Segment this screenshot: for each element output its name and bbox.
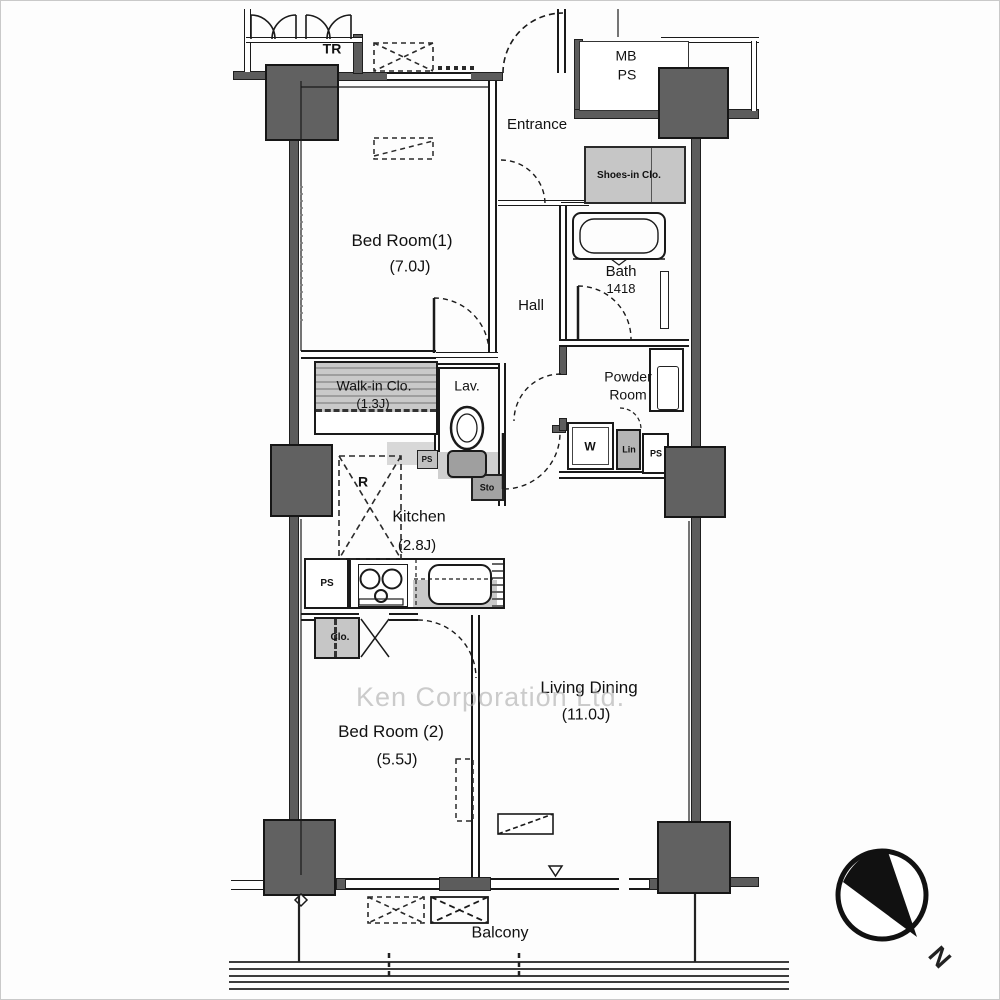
refrigerator-space: [339, 456, 401, 559]
watermark: Ken Corporation Ltd.: [356, 682, 625, 713]
ps-kitchen-label: PS: [320, 579, 333, 590]
ps-powder-label: PS: [650, 449, 662, 458]
compass-north-label: N: [923, 940, 958, 974]
diamond-marker: [295, 894, 307, 906]
entrance-label: Entrance: [507, 117, 567, 133]
bedroom2-name: Bed Room (2): [338, 723, 444, 741]
plan-symbols-layer: N: [1, 1, 1000, 1000]
washer-label: W: [584, 441, 595, 454]
linen-door-arc: [620, 408, 641, 429]
closet-label: Clo.: [331, 633, 350, 644]
compass: N: [838, 849, 957, 974]
kitchen-name: Kitchen: [392, 510, 445, 527]
bedroom2-size: (5.5J): [377, 753, 418, 770]
balcony-ac-solid: [431, 897, 488, 923]
refrigerator-label: R: [358, 475, 368, 490]
bathtub: [573, 213, 665, 265]
kitchen-sink: [414, 559, 493, 607]
bedroom1-dashed-rect: [374, 138, 433, 159]
hall-door-arc: [501, 160, 545, 204]
shoes-closet-label: Shoes-in Clo.: [597, 171, 661, 182]
powder-door-arc: [514, 374, 561, 421]
walk-in-closet-name: Walk-in Clo.: [337, 379, 412, 394]
living-door-arc: [418, 620, 476, 678]
living-counter: [498, 814, 553, 834]
trunk-room-doors: [251, 15, 351, 39]
inner-face-lines: [301, 9, 689, 875]
stove-burners: [359, 570, 403, 606]
bedroom1-name: Bed Room(1): [351, 232, 452, 250]
kitchen-size: (2.8J): [398, 538, 436, 554]
balcony-label: Balcony: [472, 926, 529, 943]
corridor-door: [503, 433, 560, 489]
ps-lav-label: PS: [422, 456, 433, 464]
ac-unit-top: [374, 43, 474, 71]
bedroom2-dashed-rect: [456, 759, 473, 821]
pipe-space-label: PS: [618, 68, 637, 83]
bedroom1-size: (7.0J): [390, 260, 431, 277]
storage-label: Sto: [480, 483, 495, 492]
lavatory-label: Lav.: [454, 379, 479, 394]
bifold-doors: [361, 619, 389, 657]
balcony-ac-dashed: [368, 897, 424, 923]
entrance-door-arc: [503, 13, 563, 73]
powder-room-label: Powder Room: [589, 369, 667, 404]
bedroom1-door: [434, 298, 489, 353]
walk-in-closet-size: (1.3J): [356, 397, 389, 411]
hall-label: Hall: [518, 298, 544, 314]
trunk-room-label: TR: [323, 42, 342, 57]
meter-box-label: MB: [616, 49, 637, 64]
toilet: [448, 407, 486, 477]
bath-name: Bath: [606, 264, 637, 280]
linen-label: Lin: [622, 445, 636, 454]
drain-marker: [549, 866, 562, 876]
bath-size: 1418: [607, 282, 636, 296]
floor-plan: N TR MB PS Entrance Shoes-in Clo. Bed Ro…: [0, 0, 1000, 1000]
